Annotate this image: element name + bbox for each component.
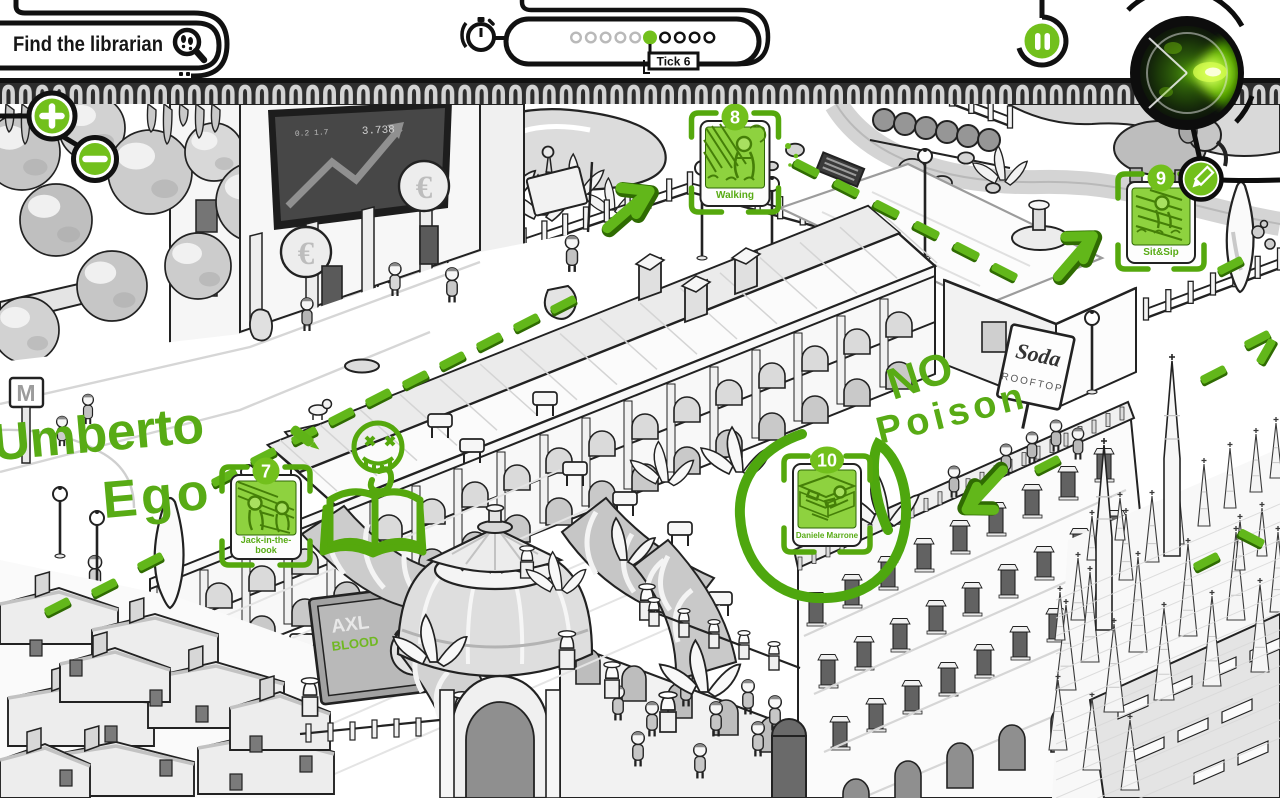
- svg-text:M: M: [16, 380, 35, 406]
- svg-text:€: €: [298, 236, 315, 272]
- svg-text:Sit&Sip: Sit&Sip: [1143, 247, 1179, 258]
- svg-text:0.2 1.7: 0.2 1.7: [295, 128, 329, 139]
- svg-text:Ego: Ego: [100, 463, 211, 530]
- svg-text:Daniele Marrone: Daniele Marrone: [796, 531, 859, 540]
- svg-text:Walking: Walking: [716, 190, 754, 201]
- svg-text:10: 10: [817, 451, 837, 471]
- svg-text:€: €: [416, 170, 433, 206]
- svg-text:Tick 6: Tick 6: [657, 55, 691, 69]
- svg-text:9: 9: [1156, 169, 1166, 189]
- svg-text:3.738: 3.738: [362, 124, 396, 138]
- svg-text:Jack-in-the-: Jack-in-the-: [241, 535, 292, 545]
- svg-text:7: 7: [261, 462, 271, 482]
- svg-text:Find the librarian: Find the librarian: [13, 33, 163, 56]
- svg-text:8: 8: [730, 108, 740, 128]
- svg-text:book: book: [255, 545, 277, 555]
